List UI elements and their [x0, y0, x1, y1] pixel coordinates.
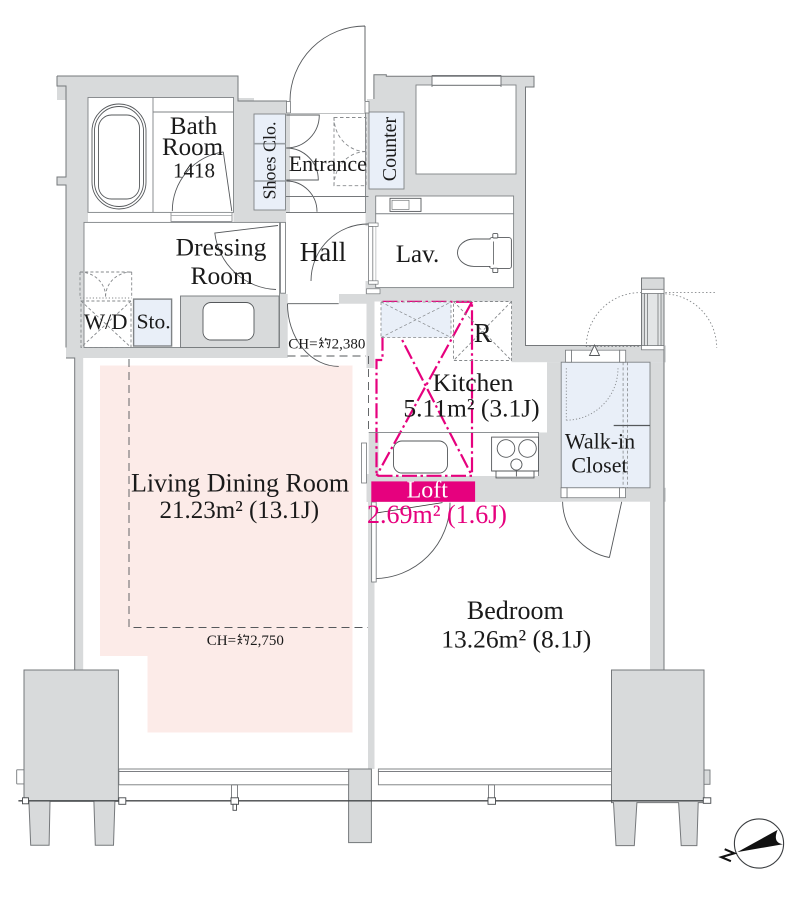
svg-text:Living Dining Room: Living Dining Room: [131, 468, 349, 497]
svg-text:Bedroom: Bedroom: [467, 596, 564, 625]
svg-text:5.11m² (3.1J): 5.11m² (3.1J): [403, 394, 539, 423]
svg-text:Dressing: Dressing: [176, 233, 267, 262]
svg-text:W/D: W/D: [84, 309, 128, 334]
svg-text:CH=: CH=: [207, 633, 236, 649]
svg-text:Counter: Counter: [379, 116, 401, 181]
svg-text:R: R: [474, 318, 492, 348]
svg-text:13.26m² (8.1J): 13.26m² (8.1J): [441, 624, 591, 653]
svg-text:CH=: CH=: [288, 337, 317, 353]
svg-text:21.23m² (13.1J): 21.23m² (13.1J): [160, 497, 320, 524]
svg-text:Room: Room: [162, 134, 224, 161]
svg-text:2,380: 2,380: [332, 337, 366, 353]
svg-text:Room: Room: [191, 261, 254, 290]
svg-text:Shoes Clo.: Shoes Clo.: [260, 121, 280, 199]
svg-text:2,750: 2,750: [250, 633, 284, 649]
svg-text:Hall: Hall: [300, 237, 347, 267]
svg-text:Sto.: Sto.: [137, 310, 171, 334]
svg-text:1418: 1418: [173, 158, 215, 182]
svg-text:2.69m² (1.6J): 2.69m² (1.6J): [367, 500, 507, 529]
svg-text:Lav.: Lav.: [396, 241, 440, 268]
svg-text:Entrance: Entrance: [289, 151, 367, 176]
svg-text:Closet: Closet: [571, 452, 627, 477]
svg-text:Walk-in: Walk-in: [565, 428, 635, 453]
